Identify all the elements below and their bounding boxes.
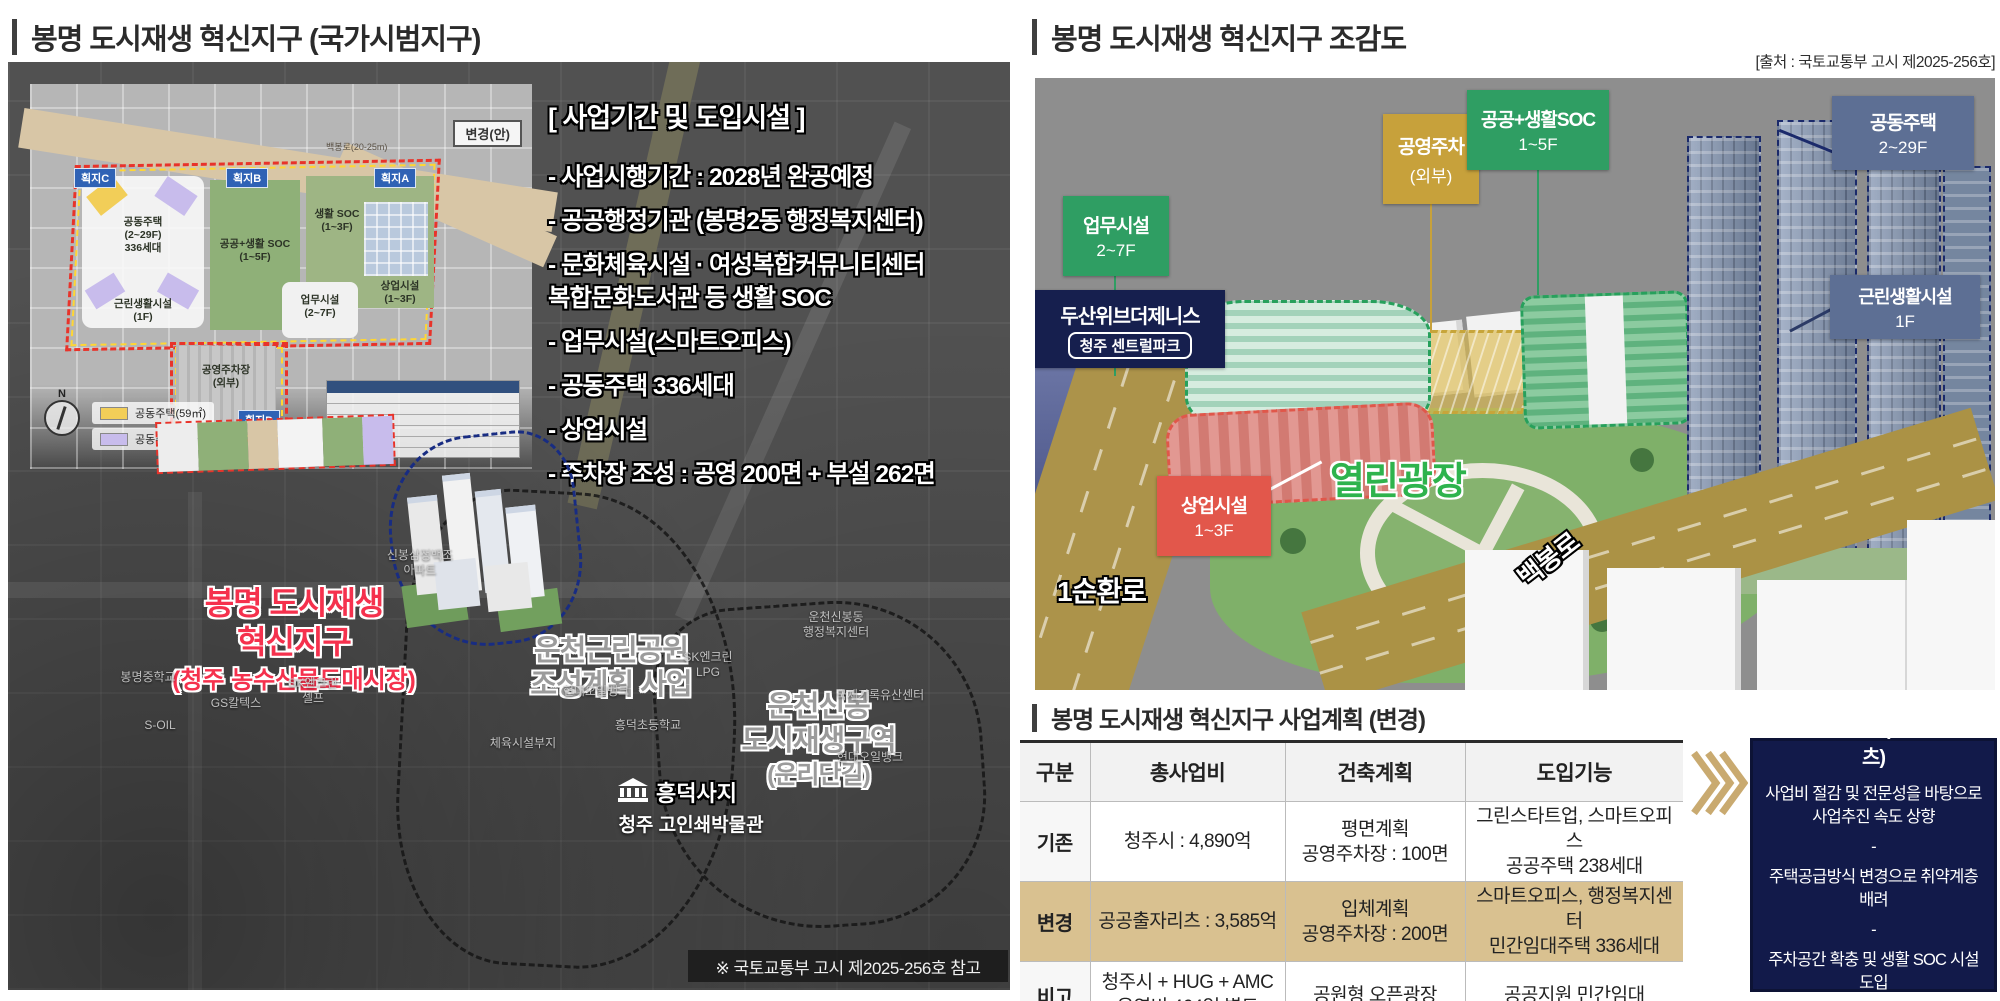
inset-zone-parking-label: 공영주차장 (외부) (176, 364, 276, 390)
title-bar-decoration (1032, 19, 1037, 55)
inset-zone-apartment-label: 공동주택 (2~29F) 336세대 (82, 216, 204, 255)
map-poi-label: 신봉삼정백조 아파트 (387, 548, 453, 578)
cell: 공원형 오픈광장 (1285, 962, 1465, 1001)
table-row-note: 비고 청주시 + HUG + AMC 운영비 464억 별도 공원형 오픈광장 … (1020, 962, 1683, 1001)
inset-zone-neighborhood-label: 근린생활시설 (1F) (82, 298, 204, 324)
fg-building (1907, 520, 1995, 690)
cell: 청주시 : 4,890억 (1090, 802, 1285, 882)
table-row-changed: 변경 공공출자리츠 : 3,585억 입체계획 공영주차장 : 200면 스마트… (1020, 882, 1683, 962)
plan-table: 구분 총사업비 건축계획 도입기능 기존 청주시 : 4,890억 평면계획 공… (1020, 740, 1683, 1001)
parcel-tag-a: 획지A (374, 168, 416, 188)
info-item: - 공동주택 336세대 (548, 370, 1010, 403)
birdseye-rendering: 업무시설2~7F 공영주차(외부) 공공+생활SOC1~5F 공동주택2~29F… (1035, 78, 1995, 690)
map-poi-label: SK엔크린 셀프 (288, 676, 337, 706)
label-neighborhood: 근린생활시설1F (1830, 275, 1980, 339)
title-bar-decoration (1032, 704, 1037, 732)
triple-chevron-icon (1690, 748, 1748, 818)
parcel-tag-c: 획지C (74, 168, 116, 188)
plan-section-title: 봉명 도시재생 혁신지구 사업계획 (변경) (1032, 700, 1425, 735)
info-item: - 문화체육시설 · 여성복합커뮤니티센터 복합문화도서관 등 생활 SOC (548, 249, 1010, 315)
cell: 청주시 + HUG + AMC 운영비 464억 별도 (1090, 962, 1285, 1001)
project-info-box: [ 사업기간 및 도입시설 ] - 사업시행기간 : 2028년 완공예정 - … (548, 96, 1010, 503)
row-label: 비고 (1020, 962, 1090, 1001)
leader-parking (1430, 203, 1432, 333)
cell: 그린스타트업, 스마트오피스 공공주택 238세대 (1465, 802, 1683, 882)
map-poi-label: 현대오일뱅크 (563, 684, 629, 699)
leader-soc (1537, 169, 1539, 295)
row-label: 기존 (1020, 802, 1090, 882)
title-bar-decoration (12, 19, 17, 55)
map-poi-label: GS칼텍스 (211, 696, 261, 711)
left-title-text: 봉명 도시재생 혁신지구 (국가시범지구) (31, 16, 480, 58)
site-plan-inset: 백봉로(20-25m) 공동주택 (2~29F) 336세대 근린생활시설 (1… (30, 84, 532, 469)
cell: 공공지원 민간임대 (1465, 962, 1683, 1001)
benefit-item: 주차공간 확충 및 생활 SOC 시설 도입 주민편의 상향 (1763, 949, 1984, 1001)
benefit-box: 사업방법 변경 (공공출자리츠) 사업비 절감 및 전문성을 바탕으로 사업추진… (1750, 738, 1997, 992)
footnote-bar: ※ 국토교통부 고시 제2025-256호 참고 (688, 950, 1008, 982)
inset-apartment-block: 공동주택 (2~29F) 336세대 근린생활시설 (1F) (82, 176, 204, 328)
inset-blue-grid-block (364, 202, 428, 276)
road-1-label: 1순환로 (1057, 570, 1146, 610)
benefit-item: 주택공급방식 변경으로 취약계층 배려 (1763, 866, 1984, 912)
map-poi-label: 국제기록유산센터 (836, 688, 924, 703)
legend-swatch-purple (100, 433, 128, 446)
table-header-row: 구분 총사업비 건축계획 도입기능 (1020, 742, 1683, 802)
cell: 입체계획 공영주차장 : 200면 (1285, 882, 1465, 962)
plan-title-text: 봉명 도시재생 혁신지구 사업계획 (변경) (1051, 700, 1425, 735)
info-item: - 공공행정기관 (봉명2동 행정복지센터) (548, 205, 1010, 238)
map-poi-label: 운천신봉동 행정복지센터 (803, 610, 869, 640)
info-item: - 사업시행기간 : 2028년 완공예정 (548, 161, 1010, 194)
col-header: 건축계획 (1285, 742, 1465, 802)
col-header: 총사업비 (1090, 742, 1285, 802)
museum-icon (618, 778, 648, 802)
inset-change-label: 변경(안) (453, 120, 522, 147)
district-label-line2: 혁신지구 (126, 623, 462, 662)
soc-building (1520, 290, 1693, 430)
info-box-title: [ 사업기간 및 도입시설 ] (548, 96, 1010, 135)
map-poi-label: SK엔크린 LPG (683, 650, 732, 680)
source-note: [출처 : 국토교통부 고시 제2025-256호] (1690, 50, 1995, 72)
map-poi-label: 흥덕초등학교 (615, 718, 681, 733)
inset-zone-office-label: 업무시설 (2~7F) (282, 294, 358, 320)
cell: 공공출자리츠 : 3,585억 (1090, 882, 1285, 962)
unchon-district-label: 운천신봉 도시재생구역 (운리단길) (706, 690, 931, 791)
table-row-existing: 기존 청주시 : 4,890억 평면계획 공영주차장 : 100면 그린스타트업… (1020, 802, 1683, 882)
label-public-parking: 공영주차(외부) (1383, 114, 1479, 204)
district-label-line1: 봉명 도시재생 (126, 584, 462, 623)
fg-building (1607, 568, 1741, 690)
infographic-page: 봉명 도시재생 혁신지구 (국가시범지구) 백봉로(20-25m) 공 (0, 0, 2000, 1001)
label-doosan: 두산위브더제니스 청주 센트럴파크 (1035, 290, 1225, 368)
compass-needle (56, 406, 66, 430)
legend-label-59: 공동주택(59㎡) (135, 405, 206, 421)
inset-zone-commercial-label: 상업시설 (1~3F) (368, 280, 432, 306)
open-plaza-label: 열린광장 (1330, 450, 1466, 505)
legend-swatch-yellow (100, 407, 128, 420)
info-item: - 주차장 조성 : 공영 200면 + 부설 262면 (548, 458, 1010, 491)
compass-n-label: N (46, 388, 78, 400)
map-poi-label: 체육시설부지 (490, 736, 556, 751)
label-soc: 공공+생활SOC1~5F (1467, 90, 1609, 170)
heungdeok-label: 흥덕사지 (656, 776, 737, 808)
left-panel-title: 봉명 도시재생 혁신지구 (국가시범지구) (12, 16, 480, 58)
right-panel-title: 봉명 도시재생 혁신지구 조감도 (1032, 16, 1406, 58)
inset-zone-life-soc-label: 생활 SOC (1~3F) (308, 208, 366, 234)
fg-building (1757, 580, 1911, 690)
col-header: 도입기능 (1465, 742, 1683, 802)
right-title-text: 봉명 도시재생 혁신지구 조감도 (1051, 16, 1406, 58)
info-item: - 상업시설 (548, 414, 1010, 447)
unchon-label-sub: (운리단길) (706, 761, 931, 791)
compass-icon: N (44, 400, 80, 436)
label-office: 업무시설2~7F (1063, 196, 1169, 276)
map-poi-label: S-OIL (144, 718, 175, 733)
inset-office-block: 업무시설 (2~7F) (282, 282, 358, 338)
col-header: 구분 (1020, 742, 1090, 802)
benefit-separator: - (1763, 836, 1984, 859)
inset-zone-soc-label: 공공+생활 SOC (1~5F) (210, 238, 300, 264)
benefit-title: 사업방법 변경 (공공출자리츠) (1763, 712, 1984, 770)
inset-road-label: 백봉로(20-25m) (326, 140, 387, 153)
benefit-separator: - (1763, 919, 1984, 942)
inset-building-purple (154, 176, 197, 216)
label-apartment: 공동주택2~29F (1832, 96, 1974, 170)
label-commercial: 상업시설1~3F (1157, 476, 1271, 556)
mini-table-header (327, 381, 519, 393)
left-map: 백봉로(20-25m) 공동주택 (2~29F) 336세대 근린생활시설 (1… (8, 62, 1010, 990)
cell: 스마트오피스, 행정복지센터 민간임대주택 336세대 (1465, 882, 1683, 962)
cell: 평면계획 공영주차장 : 100면 (1285, 802, 1465, 882)
museum-label: 청주 고인쇄박물관 (586, 810, 796, 837)
benefit-item: 사업비 절감 및 전문성을 바탕으로 사업추진 속도 상향 (1763, 783, 1984, 829)
parcel-tag-b: 획지B (226, 168, 268, 188)
map-poi-label: 봉명중학교 (120, 670, 175, 685)
map-poi-label: 현대오일뱅크 (837, 750, 903, 765)
plan-strip-preview (155, 414, 396, 474)
info-item: - 업무시설(스마트오피스) (548, 326, 1010, 359)
row-label: 변경 (1020, 882, 1090, 962)
